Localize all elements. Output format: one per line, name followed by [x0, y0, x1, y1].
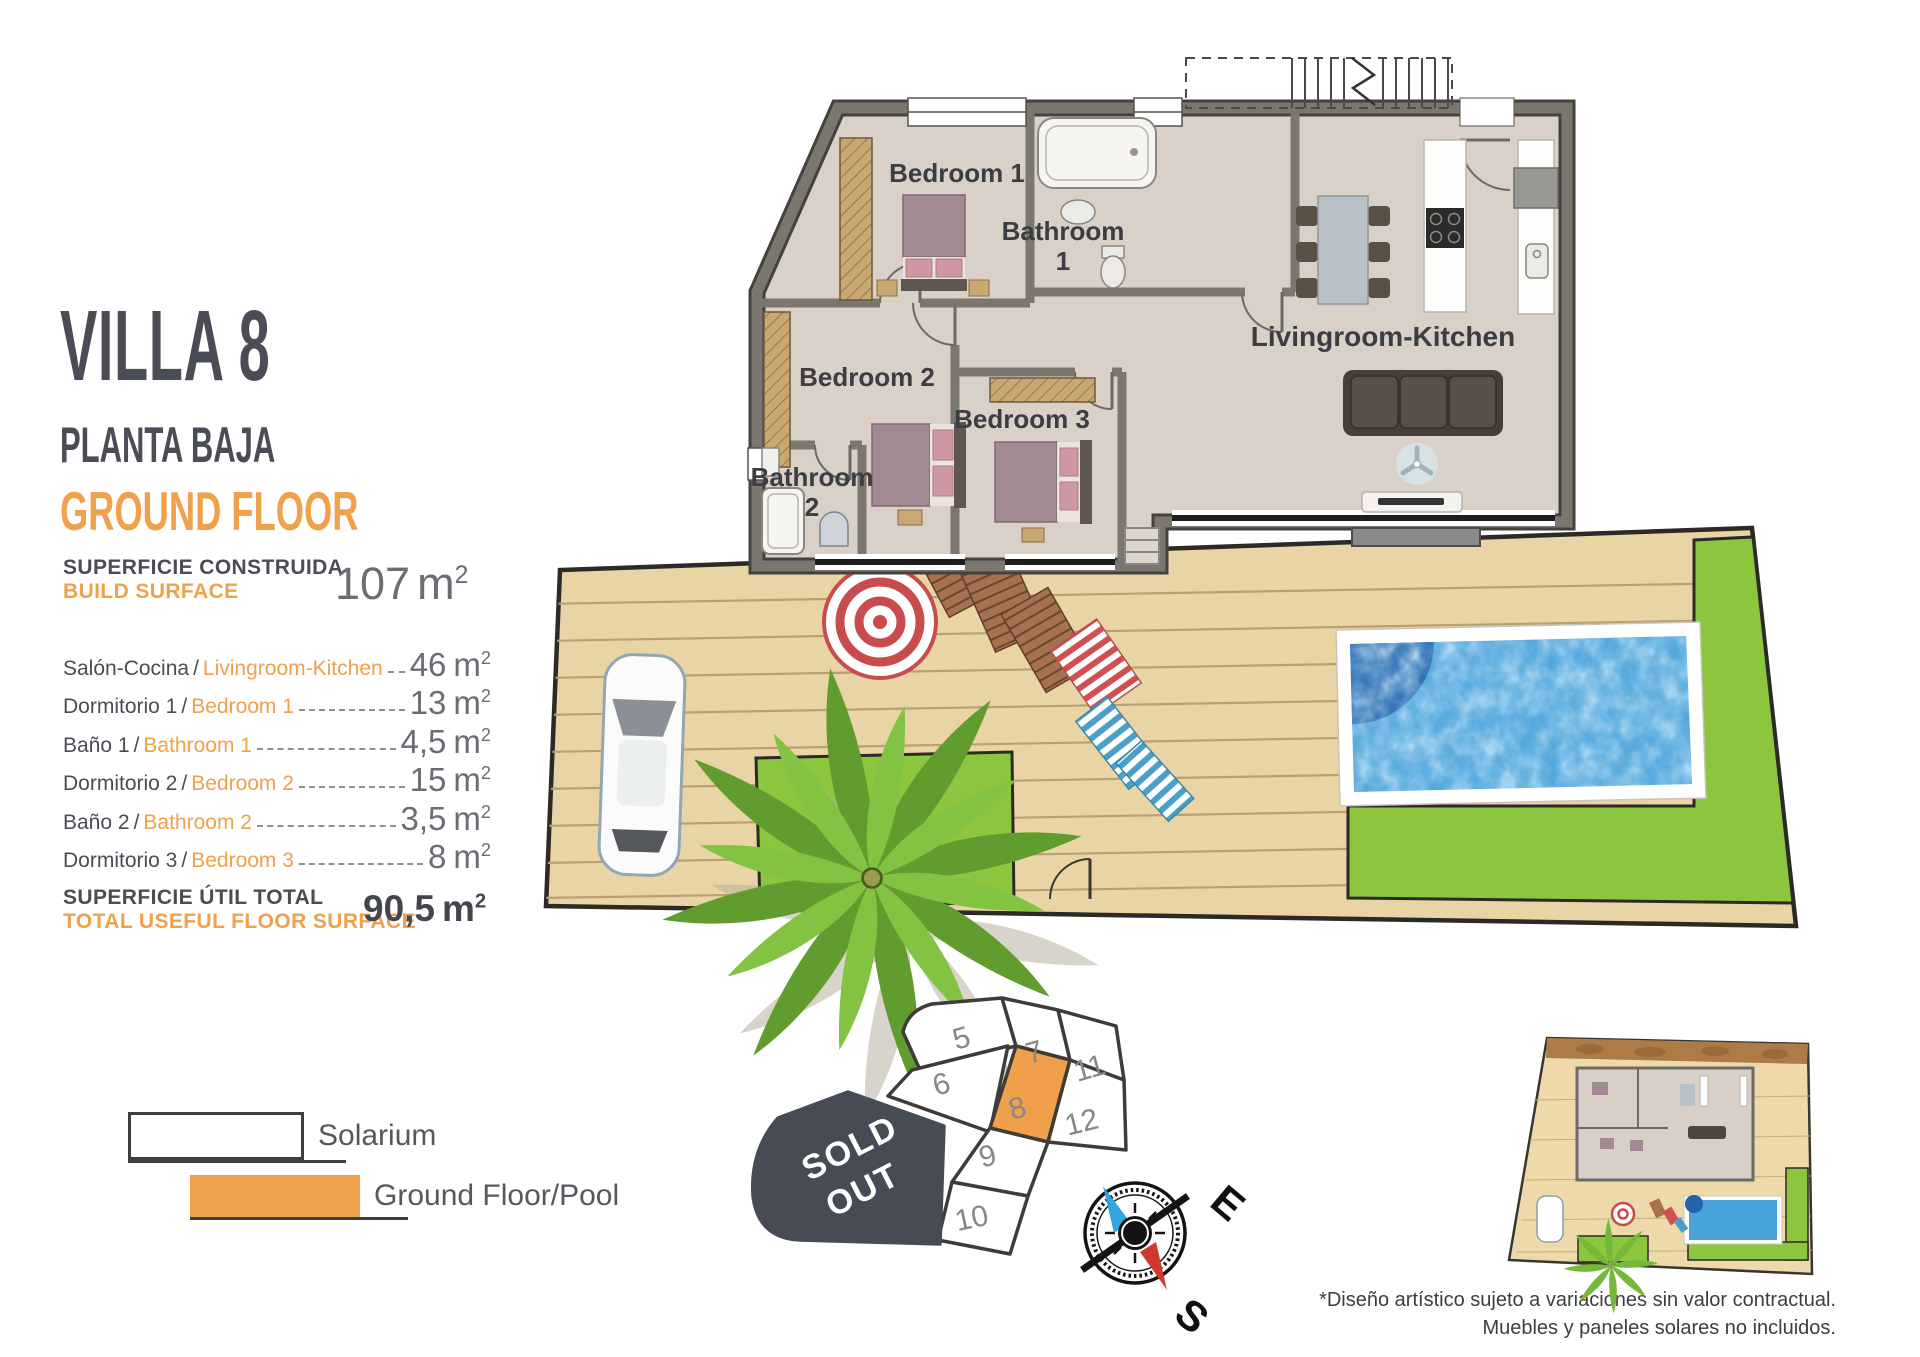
fridge [1514, 168, 1558, 208]
lot-map: 5 6 7 8 9 10 11 12 SOLD OUT [753, 998, 1126, 1254]
compass-east-label: E [1202, 1176, 1254, 1230]
car-roof [617, 739, 667, 807]
room-label-bathroom2-number: 2 [805, 492, 819, 522]
car-rear-window [611, 829, 668, 853]
kitchen-sink [1526, 244, 1548, 278]
car [598, 654, 686, 877]
mini-grass-bottom [1688, 1242, 1808, 1260]
page: VILLA 8 PLANTA BAJA GROUND FLOOR SUPERFI… [0, 0, 1920, 1357]
mini-pool [1684, 1195, 1782, 1244]
compass-rose-icon: E S [1082, 1176, 1254, 1343]
sofa [1343, 370, 1503, 436]
room-label-bathroom1: Bathroom [1002, 216, 1125, 246]
room-label-bathroom2: Bathroom [751, 462, 874, 492]
toilet [820, 512, 848, 546]
site-plan [540, 513, 1800, 1122]
mini-car [1537, 1196, 1563, 1242]
lot-number-10: 10 [952, 1199, 992, 1238]
room-label-bedroom3: Bedroom 3 [954, 404, 1090, 434]
stove [1426, 208, 1464, 248]
room-label-bathroom1-number: 1 [1056, 246, 1070, 276]
tv-console [1362, 492, 1462, 512]
parasol [824, 566, 936, 678]
dining-table [1318, 196, 1368, 304]
water-texture [1336, 622, 1716, 812]
room-label-bedroom1: Bedroom 1 [889, 158, 1025, 188]
stair-break-symbol [1352, 58, 1375, 105]
sliding-door [815, 554, 965, 570]
toilet [1101, 246, 1125, 288]
entry-opening [1460, 98, 1514, 126]
sliding-door [1005, 554, 1115, 570]
sliding-door [1172, 510, 1555, 526]
mini-house [1577, 1068, 1753, 1180]
kitchen-counter [1518, 140, 1554, 314]
outdoor-cabinet [1352, 528, 1480, 546]
mini-parasol [1612, 1203, 1634, 1225]
room-label-living: Livingroom-Kitchen [1251, 321, 1515, 352]
ceiling-fan [1396, 443, 1438, 485]
palm-trunk [863, 869, 882, 888]
compass-south-label: S [1166, 1289, 1218, 1343]
floorplan-graphic: Bedroom 1 Bathroom 1 Bedroom 2 Bedroom 3… [0, 0, 1920, 1357]
dining-set [1296, 196, 1390, 304]
room-label-bedroom2: Bedroom 2 [799, 362, 935, 392]
mini-site-plan [1509, 1038, 1812, 1313]
window [908, 98, 1026, 126]
house: Bedroom 1 Bathroom 1 Bedroom 2 Bedroom 3… [748, 58, 1567, 570]
deck-steps [1125, 528, 1159, 564]
bathtub [1038, 118, 1156, 188]
